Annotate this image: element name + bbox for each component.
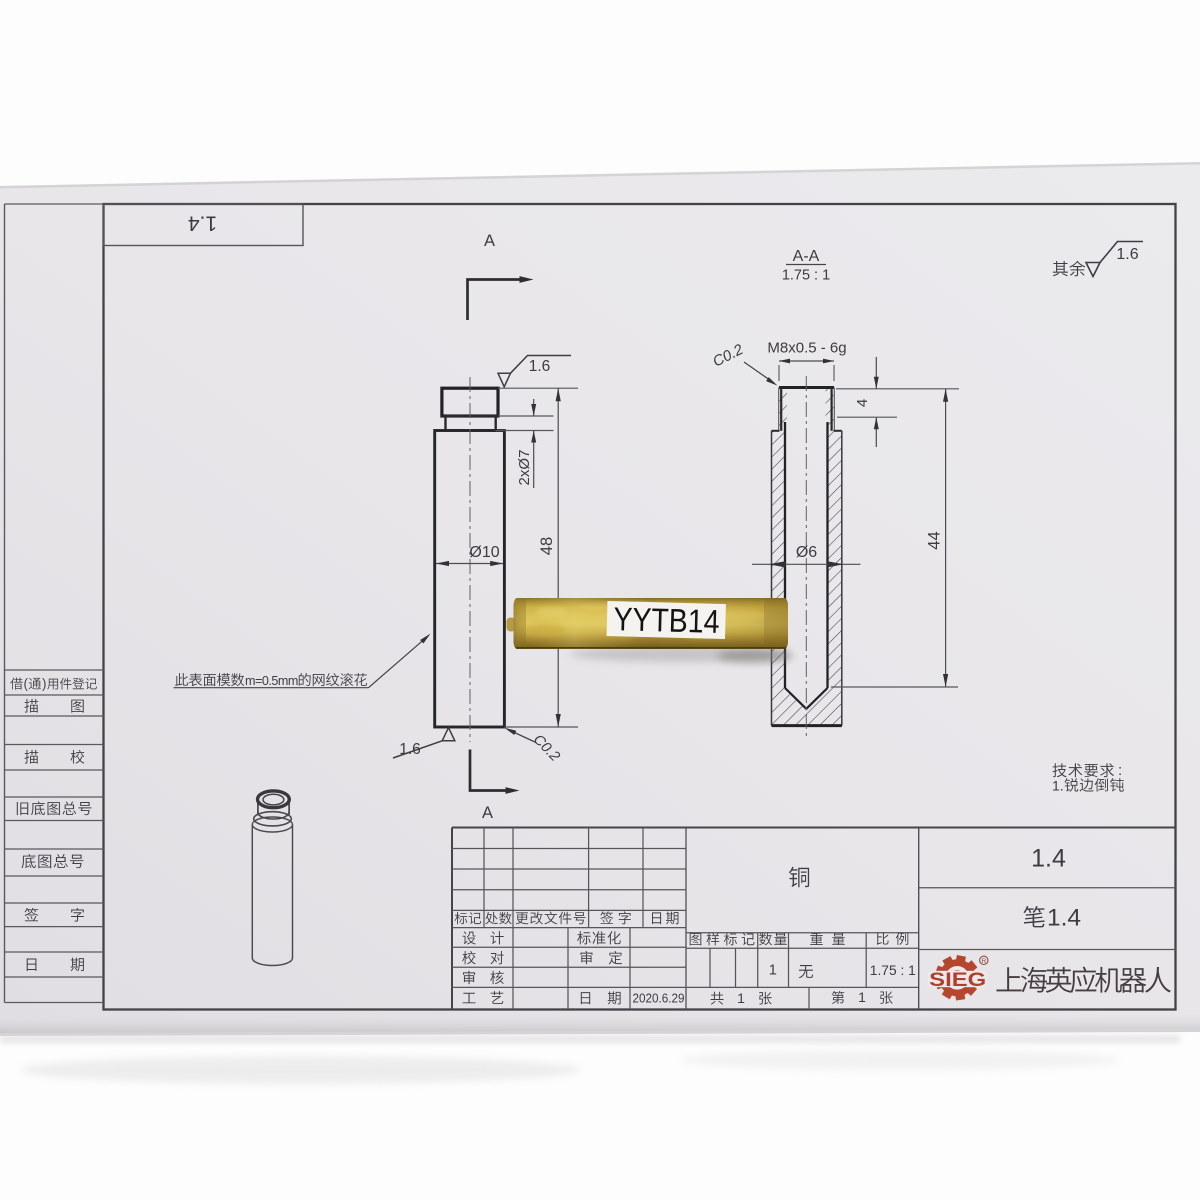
svg-text:A: A (484, 232, 495, 250)
svg-text::: : (1118, 762, 1122, 779)
svg-text:1.4: 1.4 (1031, 845, 1066, 873)
svg-text:Ø6: Ø6 (796, 544, 817, 561)
svg-text:Ø10: Ø10 (469, 544, 499, 561)
svg-text:1.: 1. (1052, 778, 1064, 794)
svg-text:4: 4 (854, 399, 871, 407)
svg-text:44: 44 (926, 531, 944, 549)
svg-text:YYTB14: YYTB14 (613, 600, 720, 640)
svg-text:1.6: 1.6 (1116, 246, 1138, 263)
svg-text:1.4: 1.4 (1047, 904, 1081, 931)
svg-text:1: 1 (737, 990, 745, 1006)
svg-text:A-A: A-A (793, 248, 820, 265)
svg-text:m=0.5mm: m=0.5mm (245, 674, 298, 688)
svg-text:): ) (42, 676, 47, 691)
svg-text:M8x0.5 - 6g: M8x0.5 - 6g (767, 340, 846, 357)
svg-text:R: R (981, 958, 986, 965)
svg-text:(: ( (24, 676, 29, 691)
svg-text:2020.6.29: 2020.6.29 (633, 991, 685, 1006)
svg-text:2xØ7: 2xØ7 (516, 450, 533, 486)
svg-text:48: 48 (538, 537, 556, 555)
svg-text:1.6: 1.6 (529, 358, 551, 375)
svg-text:1.75 : 1: 1.75 : 1 (870, 963, 916, 978)
svg-text:A: A (482, 804, 493, 822)
svg-text:1.6: 1.6 (399, 741, 421, 758)
svg-text:1.75 : 1: 1.75 : 1 (782, 268, 830, 284)
svg-text:1: 1 (858, 989, 866, 1005)
svg-text:1: 1 (769, 962, 777, 978)
svg-text:SIEG: SIEG (929, 969, 986, 991)
svg-text:1.4: 1.4 (188, 212, 218, 235)
